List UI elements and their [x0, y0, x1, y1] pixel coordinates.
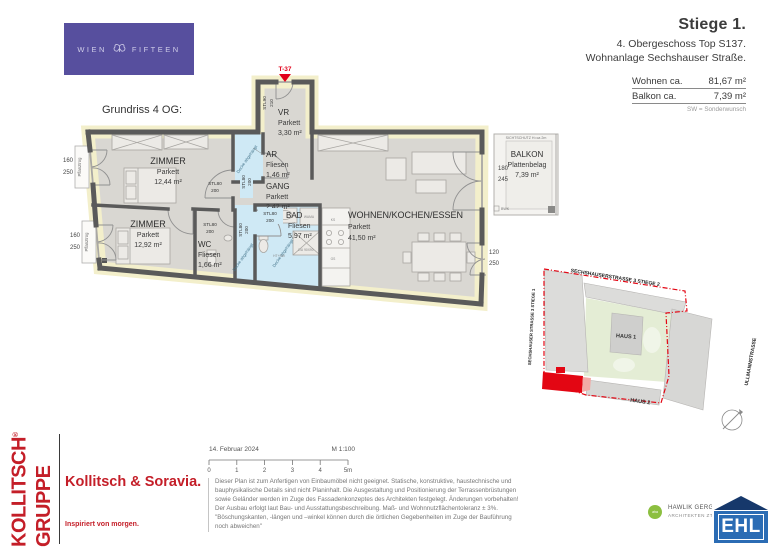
kollitsch-gruppe-logo: KOLLITSCH® GRUPPE	[5, 435, 59, 547]
logo-word-wien: WIEN	[77, 45, 107, 54]
architect-subtitle: ARCHITEKTEN ZT G	[668, 513, 718, 518]
svg-text:3,30 m²: 3,30 m²	[278, 130, 302, 137]
svg-text:Fliesen: Fliesen	[288, 223, 311, 230]
shower-label: DU 90X90	[298, 248, 313, 252]
door-tag: STL80	[263, 211, 277, 216]
washer-label: WAMA	[304, 215, 315, 219]
disclaimer-line: "Böschungskanten, -längen und –winkel kö…	[215, 514, 527, 523]
dim-window-3-h: 250	[489, 261, 500, 267]
disclaimer-line: bauphysikalische Details sind nicht Plan…	[215, 487, 527, 496]
area-row-wohnen: Wohnen ca. 81,67 m²	[632, 74, 746, 89]
area-row-balkon: Balkon ca. 7,39 m²	[632, 89, 746, 104]
room-label-gang: GANG Parkett 2,42 m²	[266, 182, 290, 211]
pflanztrog-label-1: Pflanztrog	[77, 157, 82, 177]
disclaimer-line: noch abweichen"	[215, 523, 527, 532]
svg-text:ZIMMER: ZIMMER	[150, 156, 186, 166]
disclaimer: Dieser Plan ist zum Anfertigen von Einba…	[208, 478, 527, 532]
footer-divider	[59, 434, 60, 544]
plan-scale: M 1:100	[332, 446, 356, 453]
svg-text:Parkett: Parkett	[278, 120, 300, 127]
area-label: Wohnen ca.	[632, 76, 683, 87]
dim-balcony-door-h: 245	[498, 177, 509, 183]
svg-text:Parkett: Parkett	[157, 169, 179, 176]
dim-window-1-w: 160	[63, 158, 74, 164]
butterfly-icon	[112, 43, 127, 56]
unit-subtitle: 4. Obergeschoss Top S137.	[476, 37, 746, 51]
svg-text:BALKON: BALKON	[511, 150, 544, 159]
architect-badge-icon: aha	[648, 505, 662, 519]
svg-text:Plattenbelag: Plattenbelag	[508, 162, 547, 169]
svg-text:5,97 m²: 5,97 m²	[288, 233, 312, 240]
dishwasher-label: GS	[331, 257, 337, 261]
entry-door-tag: STL90	[262, 96, 267, 110]
door-tag-width: 200	[206, 229, 214, 234]
street-label-left: SECHSHAUSER STRASSE 3 STIEGE 1	[527, 288, 536, 365]
disclaimer-line: Dieser Plan ist zum Anfertigen von Einba…	[215, 478, 527, 487]
area-table: Wohnen ca. 81,67 m² Balkon ca. 7,39 m² S…	[632, 74, 746, 113]
door-tag: STL80	[238, 223, 243, 237]
svg-text:1,66 m²: 1,66 m²	[198, 262, 222, 269]
slogan: Inspiriert von morgen.	[65, 521, 139, 528]
ehl-roof-icon	[714, 496, 768, 510]
disclaimer-line: sowie Geländer werden im Zuge des Fassad…	[215, 496, 527, 505]
dim-window-2-w: 160	[70, 233, 81, 239]
street-label-right: ULLMANNSTRASSE	[744, 337, 758, 386]
group-word-1: KOLLITSCH	[9, 437, 31, 547]
scale-tick: 4	[319, 468, 323, 474]
door-tag-width: 200	[244, 226, 249, 234]
kollitsch-soravia-wordmark: Kollitsch & Soravia.	[65, 474, 201, 490]
svg-text:Parkett: Parkett	[137, 232, 159, 239]
svg-text:GANG: GANG	[266, 182, 290, 191]
svg-text:AR: AR	[266, 150, 277, 159]
compass-icon	[722, 409, 743, 430]
ehl-logo: EHL	[712, 494, 770, 545]
street-label-top: SECHSHAUSERSTRASSE 3 STIEGE 2	[570, 268, 660, 288]
svg-text:Fliesen: Fliesen	[266, 162, 289, 169]
dim-window-3-w: 120	[489, 250, 500, 256]
group-word-2: GRUPPE	[32, 435, 56, 547]
svg-text:Parkett: Parkett	[348, 224, 370, 231]
dim-window-2-h: 250	[70, 245, 81, 251]
sw-note: SW = Sonderwunsch	[632, 106, 746, 113]
privacy-screen-note: SICHTSCHUTZ H=ca 2m	[506, 136, 547, 140]
dim-window-1-h: 250	[63, 170, 74, 176]
svg-text:WC: WC	[198, 240, 212, 249]
svg-text:Parkett: Parkett	[266, 194, 288, 201]
scale-tick: 0	[207, 468, 211, 474]
area-label: Balkon ca.	[632, 91, 676, 102]
disclaimer-line: Der Ausbau erfolgt laut Bau- und Ausstat…	[215, 505, 527, 514]
site-plan: SECHSHAUSERSTRASSE 3 STIEGE 2 SECHSHAUSE…	[520, 262, 770, 445]
door-tag: STL80	[203, 222, 217, 227]
pflanztrog-label-2: Pflanztrog	[84, 232, 89, 252]
plan-meta: 14. Februar 2024 M 1:100	[209, 446, 355, 453]
plan-date: 14. Februar 2024	[209, 446, 259, 453]
svg-text:41,50 m²: 41,50 m²	[348, 235, 376, 242]
entry-tag: T-37	[278, 66, 291, 73]
dim-balcony-door-w: 180	[498, 166, 509, 172]
logo-word-fifteen: FIFTEEN	[132, 45, 181, 54]
svg-text:WOHNEN/KOCHEN/ESSEN: WOHNEN/KOCHEN/ESSEN	[348, 210, 463, 220]
scale-bar: 0 1 2 3 4 5m	[207, 456, 359, 474]
svg-text:ZIMMER: ZIMMER	[130, 219, 166, 229]
floor-plan: T-37 ZIMMER Parkett 12,44 m² ZIMMER Park…	[60, 58, 575, 324]
registered-mark: ®	[13, 432, 20, 437]
page-title: Stiege 1.	[476, 16, 746, 34]
scale-tick: 2	[263, 468, 267, 474]
svg-text:Fliesen: Fliesen	[198, 252, 221, 259]
door-tag: STL80	[241, 175, 246, 189]
door-tag-width: 200	[247, 178, 252, 186]
bwk-label: BWK	[501, 207, 510, 211]
door-tag-width: 200	[266, 218, 274, 223]
svg-text:1,46 m²: 1,46 m²	[266, 172, 290, 179]
htsw-label: HT+SW	[273, 254, 286, 258]
scale-tick: 1	[235, 468, 239, 474]
area-value: 7,39 m²	[714, 91, 746, 102]
svg-text:BAD: BAD	[286, 211, 303, 220]
scale-tick: 5m	[344, 468, 352, 474]
svg-text:12,44 m²: 12,44 m²	[154, 179, 182, 186]
floorplan-sheet: { "brand": {"wien": "WIEN", "fifteen": "…	[0, 0, 770, 545]
ehl-wordmark: EHL	[718, 514, 764, 540]
entry-door-tag-width: 210	[269, 99, 274, 107]
door-tag: STL80	[208, 181, 222, 186]
svg-text:7,39 m²: 7,39 m²	[515, 172, 539, 179]
svg-text:12,92 m²: 12,92 m²	[134, 242, 162, 249]
svg-text:VR: VR	[278, 108, 289, 117]
area-value: 81,67 m²	[709, 76, 747, 87]
scale-tick: 3	[291, 468, 295, 474]
door-tag-width: 200	[211, 188, 219, 193]
